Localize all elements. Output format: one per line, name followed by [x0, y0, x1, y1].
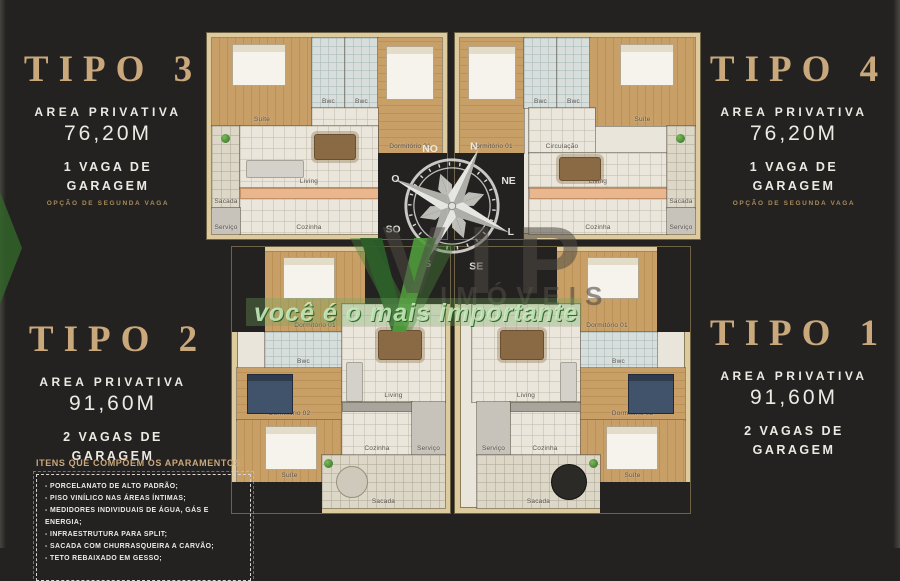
- room-cozinha: Cozinha: [510, 402, 580, 455]
- dining-table-graphic: [500, 330, 544, 360]
- tipo3-area-value: 76,20M: [10, 122, 206, 146]
- compass-rose: N NE L SE S SO O NO: [377, 131, 527, 281]
- counter-graphic: [240, 188, 378, 199]
- room-bwc-1: Bwc: [524, 38, 557, 108]
- panel-tipo3: TIPO 3 AREA PRIVATIVA 76,20M 1 VAGA DE G…: [10, 48, 206, 207]
- tipo3-note: OPÇÃO DE SEGUNDA VAGA: [10, 200, 206, 207]
- bed-graphic: [232, 44, 286, 86]
- tipo2-area-value: 91,60M: [15, 392, 211, 416]
- panel-tipo4: TIPO 4 AREA PRIVATIVA 76,20M 1 VAGA DE G…: [696, 48, 892, 207]
- tipo2-area-label: AREA PRIVATIVA: [15, 375, 211, 389]
- room-living: Living: [472, 304, 580, 402]
- room-sacada: Sacada: [212, 126, 240, 208]
- plant-graphic: [221, 134, 230, 143]
- plant-graphic: [676, 134, 685, 143]
- bed-graphic: [620, 44, 674, 86]
- panel-tipo2: TIPO 2 AREA PRIVATIVA 91,60M 2 VAGAS DE …: [15, 318, 211, 466]
- tipo4-note: OPÇÃO DE SEGUNDA VAGA: [696, 200, 892, 207]
- dining-table-graphic: [378, 330, 422, 360]
- counter-graphic: [510, 402, 580, 412]
- panel-tipo1: TIPO 1 AREA PRIVATIVA 91,60M 2 VAGAS DE …: [696, 312, 892, 460]
- room-servico: Serviço: [667, 208, 695, 234]
- item-medidores: - MEDIDORES INDIVIDUAIS DE ÁGUA, GÁS E E…: [45, 505, 244, 529]
- item-porcelanato: - PORCELANATO DE ALTO PADRÃO;: [45, 481, 244, 493]
- tipo1-area-value: 91,60M: [696, 386, 892, 410]
- bed-graphic: [247, 374, 293, 414]
- room-sacada: Sacada: [477, 455, 600, 508]
- compass-se-label: SE: [469, 261, 483, 272]
- room-servico: Serviço: [412, 402, 445, 455]
- tipo4-garage: 1 VAGA DE GARAGEM: [729, 158, 859, 196]
- dining-table-graphic: [314, 134, 356, 160]
- tipo1-garage: 2 VAGAS DE GARAGEM: [729, 422, 859, 460]
- sofa-graphic: [560, 362, 577, 402]
- tipo3-title: TIPO 3: [20, 48, 206, 91]
- plant-graphic: [324, 459, 333, 468]
- tipo1-area-label: AREA PRIVATIVA: [696, 369, 892, 383]
- room-living: Living: [240, 126, 378, 188]
- bed-graphic: [606, 426, 658, 470]
- plan-notch: [600, 482, 690, 513]
- tipo4-area-label: AREA PRIVATIVA: [696, 105, 892, 119]
- room-suite: Suíte: [212, 38, 312, 126]
- dining-table-graphic: [559, 157, 601, 181]
- page-right-edge: [893, 0, 900, 548]
- room-living: Living: [342, 304, 445, 402]
- room-cozinha: Cozinha: [240, 188, 378, 234]
- compass-l-label: L: [508, 227, 515, 238]
- room-circulacao: Circulação: [529, 108, 595, 153]
- plan-notch: [657, 247, 690, 332]
- room-cozinha: Cozinha: [342, 402, 412, 455]
- compass-s-label: S: [424, 259, 431, 270]
- compass-no-label: NO: [422, 144, 438, 155]
- tipo2-title: TIPO 2: [25, 318, 211, 361]
- tipo1-title: TIPO 1: [706, 312, 892, 355]
- room-bwc-2: Bwc: [557, 38, 590, 108]
- bed-graphic: [386, 46, 434, 100]
- floorplan-tipo2: Dormitório 01 Bwc Dormitório 02 Suíte Li…: [232, 247, 450, 513]
- tipo4-area-value: 76,20M: [696, 122, 892, 146]
- flyer-page: { "panels": { "tipo3": {"title":"TIPO 3"…: [0, 0, 900, 548]
- room-suite: Suíte: [590, 38, 695, 126]
- sofa-graphic: [346, 362, 363, 402]
- room-cozinha: Cozinha: [529, 188, 667, 234]
- room-bwc: Bwc: [265, 332, 342, 368]
- compass-n-label: N: [470, 141, 478, 152]
- tipo3-garage: 1 VAGA DE GARAGEM: [43, 158, 173, 196]
- compass-ne-label: NE: [501, 176, 515, 187]
- round-table-graphic: [551, 464, 587, 500]
- room-dormitorio-02: Dormitório 02: [580, 368, 685, 420]
- bed-graphic: [587, 257, 639, 299]
- room-sacada: Sacada: [322, 455, 445, 508]
- tipo4-title: TIPO 4: [706, 48, 892, 91]
- room-bwc-1: Bwc: [312, 38, 345, 108]
- room-sacada: Sacada: [667, 126, 695, 208]
- bed-graphic: [265, 426, 317, 470]
- room-bwc-2: Bwc: [345, 38, 378, 108]
- item-teto: - TETO REBAIXADO EM GESSO;: [45, 553, 244, 565]
- plan-notch: [232, 247, 265, 332]
- items-section: ITENS QUE COMPÕEM OS APARAMENTOS: - PORC…: [36, 458, 251, 581]
- round-table-graphic: [336, 466, 368, 498]
- bed-graphic: [628, 374, 674, 414]
- compass-o-label: O: [391, 174, 399, 185]
- room-servico: Serviço: [477, 402, 510, 455]
- room-dormitorio-02: Dormitório 02: [237, 368, 342, 420]
- plant-graphic: [589, 459, 598, 468]
- bed-graphic: [283, 257, 335, 299]
- compass-so-label: SO: [386, 225, 401, 236]
- room-servico: Serviço: [212, 208, 240, 234]
- item-infraestrutura: - INFRAESTRUTURA PARA SPLIT;: [45, 529, 244, 541]
- page-left-edge: [0, 0, 6, 548]
- items-box: - PORCELANATO DE ALTO PADRÃO; - PISO VIN…: [36, 474, 251, 581]
- item-piso-vinilico: - PISO VINÍLICO NAS ÁREAS ÍNTIMAS;: [45, 493, 244, 505]
- room-living: Living: [529, 153, 667, 188]
- floorplan-tipo1: Dormitório 01 Bwc Dormitório 02 Suíte Li…: [455, 247, 690, 513]
- room-bwc: Bwc: [580, 332, 657, 368]
- counter-graphic: [529, 188, 667, 199]
- bed-graphic: [468, 46, 516, 100]
- counter-graphic: [342, 402, 412, 412]
- sofa-graphic: [246, 160, 304, 178]
- tipo3-area-label: AREA PRIVATIVA: [10, 105, 206, 119]
- items-title: ITENS QUE COMPÕEM OS APARAMENTOS:: [36, 458, 251, 468]
- item-sacada: - SACADA COM CHURRASQUEIRA A CARVÃO;: [45, 541, 244, 553]
